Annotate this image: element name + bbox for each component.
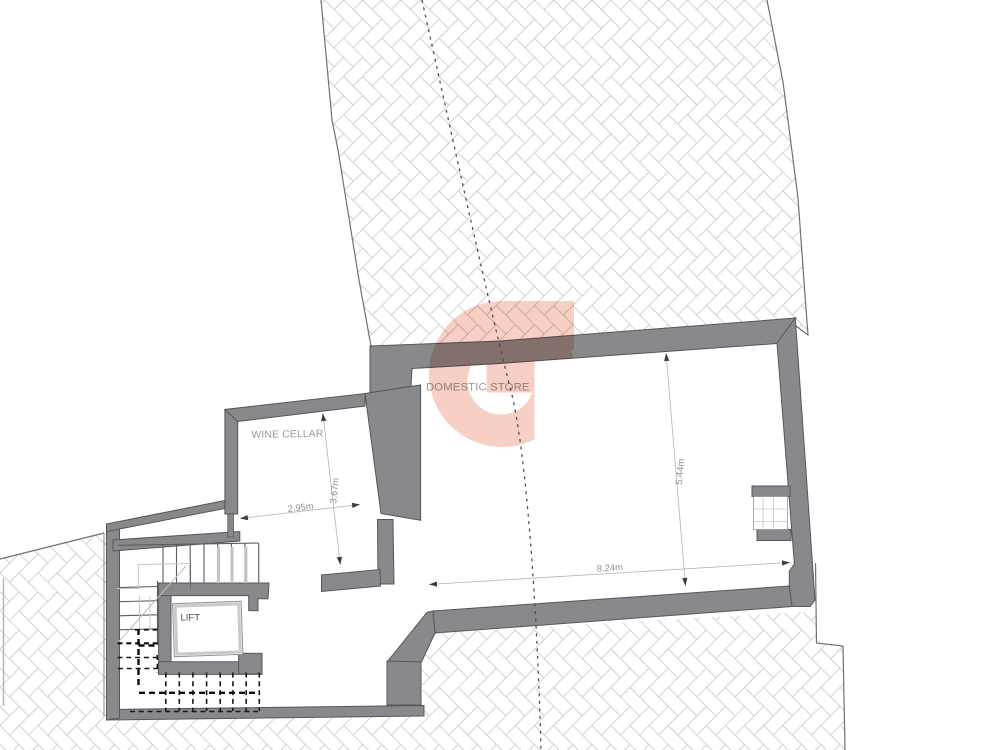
svg-text:3.67m: 3.67m — [327, 477, 341, 504]
svg-text:2.95m: 2.95m — [287, 500, 314, 514]
svg-text:5.44m: 5.44m — [673, 458, 686, 485]
svg-text:8.24m: 8.24m — [596, 561, 623, 574]
svg-text:WINE CELLAR: WINE CELLAR — [251, 429, 323, 441]
svg-text:LIFT: LIFT — [181, 613, 201, 624]
